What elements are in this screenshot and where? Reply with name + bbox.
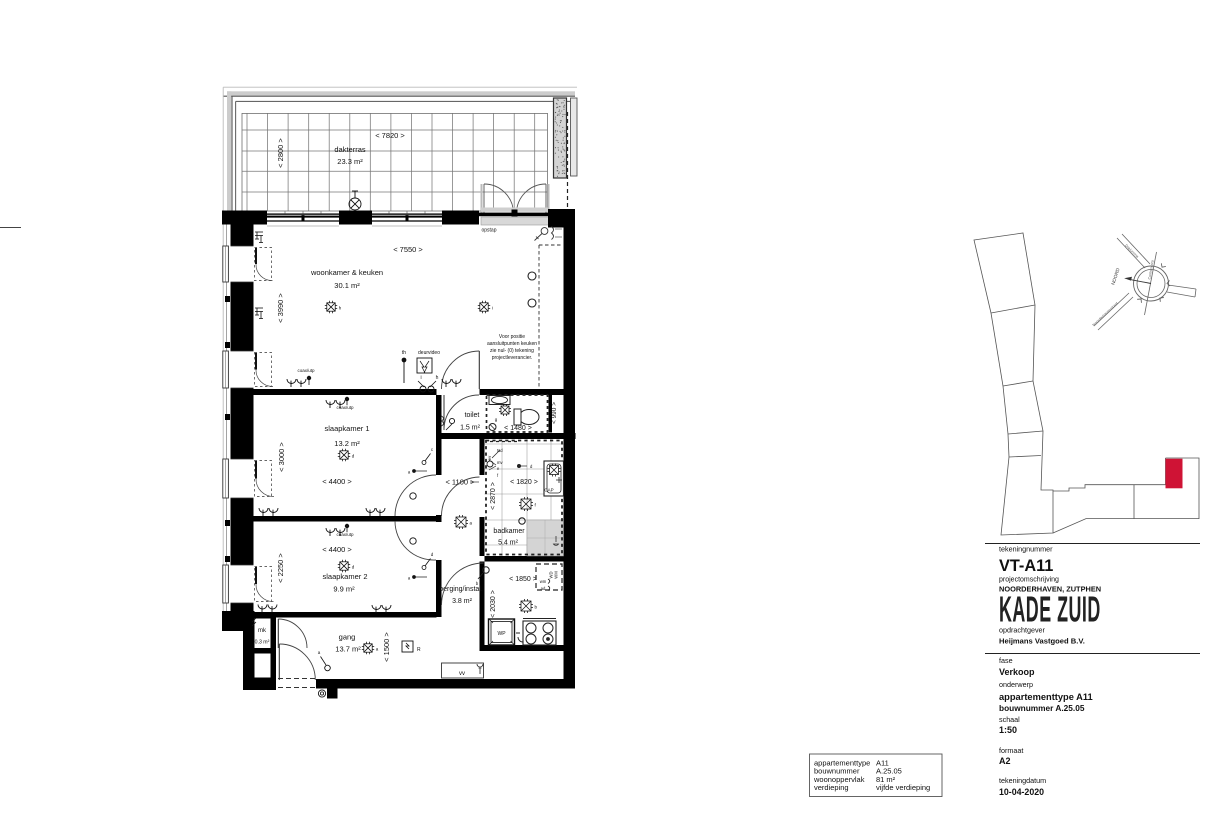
svg-text:fase: fase <box>999 656 1013 665</box>
svg-text:< 2250 >: < 2250 > <box>276 553 285 583</box>
svg-text:< 1820 >: < 1820 > <box>510 479 538 486</box>
svg-text:gang: gang <box>339 633 356 642</box>
svg-text:aansluitpunten keuken: aansluitpunten keuken <box>487 341 537 347</box>
svg-text:3.8 m²: 3.8 m² <box>452 598 473 605</box>
svg-text:< 4400 >: < 4400 > <box>322 545 352 554</box>
svg-text:toilet: toilet <box>465 412 480 419</box>
svg-text:Verkoop: Verkoop <box>999 667 1035 677</box>
svg-text:10-04-2020: 10-04-2020 <box>999 787 1044 797</box>
svg-text:Heijmans Vastgoed B.V.: Heijmans Vastgoed B.V. <box>999 637 1085 646</box>
svg-text:R: R <box>417 647 421 653</box>
svg-text:< 990 >: < 990 > <box>551 402 558 424</box>
svg-text:formaat: formaat <box>999 746 1023 755</box>
svg-text:30.1 m²: 30.1 m² <box>334 281 360 290</box>
svg-text:WP: WP <box>497 631 506 637</box>
svg-text:i: i <box>420 375 421 381</box>
svg-text:opstap: opstap <box>481 228 496 234</box>
svg-text:woonkamer & keuken: woonkamer & keuken <box>310 268 383 277</box>
svg-text:bouwnummer A.25.05: bouwnummer A.25.05 <box>999 703 1085 713</box>
svg-text:< 1500 >: < 1500 > <box>382 632 391 662</box>
svg-text:< 4400 >: < 4400 > <box>322 477 352 486</box>
svg-text:vv: vv <box>459 671 465 677</box>
svg-text:< 1850 >: < 1850 > <box>509 576 537 583</box>
svg-text:opdrachtgever: opdrachtgever <box>999 626 1046 635</box>
svg-text:zie nul- (0) tekening: zie nul- (0) tekening <box>490 348 534 354</box>
svg-text:< 2800 >: < 2800 > <box>276 138 285 168</box>
svg-text:< 3990 >: < 3990 > <box>276 293 285 323</box>
svg-text:coax/utp: coax/utp <box>336 532 354 537</box>
svg-text:< 2870 >: < 2870 > <box>490 482 497 510</box>
svg-text:WM: WM <box>554 571 559 579</box>
svg-text:9.9 m²: 9.9 m² <box>333 585 355 594</box>
svg-text:< 3000 >: < 3000 > <box>277 442 286 472</box>
svg-text:appartementtype A11: appartementtype A11 <box>999 692 1093 702</box>
svg-text:1.5 m²: 1.5 m² <box>460 425 481 432</box>
svg-text:coax/utp: coax/utp <box>297 368 315 373</box>
svg-text:5.4 m²: 5.4 m² <box>498 540 519 547</box>
svg-text:KADE ZUID: KADE ZUID <box>999 590 1101 631</box>
svg-text:deurvideo: deurvideo <box>418 350 440 356</box>
svg-text:badkamer: badkamer <box>493 528 525 535</box>
svg-text:1:50: 1:50 <box>999 725 1017 735</box>
svg-text:projectomschrijving: projectomschrijving <box>999 577 1059 584</box>
svg-text:13.2 m²: 13.2 m² <box>334 439 360 448</box>
svg-text:CAP: CAP <box>544 488 553 493</box>
svg-text:tekeningdatum: tekeningdatum <box>999 776 1046 785</box>
svg-text:schaal: schaal <box>999 715 1020 724</box>
svg-text:wm: wm <box>540 579 547 584</box>
svg-text:< 1480 >: < 1480 > <box>504 425 532 432</box>
svg-text:h: h <box>436 375 439 381</box>
svg-text:< 7550 >: < 7550 > <box>393 245 423 254</box>
svg-text:slaapkamer 2: slaapkamer 2 <box>322 572 367 581</box>
svg-text:Voor positie: Voor positie <box>499 334 525 340</box>
svg-text:0.3 m²: 0.3 m² <box>255 640 270 646</box>
svg-text:VT-A11: VT-A11 <box>999 557 1053 575</box>
svg-text:coax/utp: coax/utp <box>336 405 354 410</box>
svg-text:tekeningnummer: tekeningnummer <box>999 545 1053 554</box>
svg-text:ad: ad <box>541 586 546 591</box>
svg-text:i: i <box>492 306 493 311</box>
svg-text:A2: A2 <box>999 756 1011 766</box>
svg-text:mv: mv <box>497 460 503 465</box>
svg-text:23.3 m²: 23.3 m² <box>337 157 363 166</box>
svg-text:projectleverancier.: projectleverancier. <box>492 355 533 361</box>
svg-text:th: th <box>402 350 406 356</box>
svg-text:slaapkamer 1: slaapkamer 1 <box>324 424 369 433</box>
svg-text:verdieping: verdieping <box>814 783 849 792</box>
svg-text:mk: mk <box>258 628 267 634</box>
svg-text:vijfde verdieping: vijfde verdieping <box>876 783 930 792</box>
svg-text:< 2030 >: < 2030 > <box>490 590 497 618</box>
svg-text:13.7 m²: 13.7 m² <box>335 645 361 654</box>
svg-text:onderwerp: onderwerp <box>999 680 1033 689</box>
svg-text:< 7820 >: < 7820 > <box>375 131 405 140</box>
svg-text:dakterras: dakterras <box>334 145 366 154</box>
svg-text:WD: WD <box>549 572 554 579</box>
